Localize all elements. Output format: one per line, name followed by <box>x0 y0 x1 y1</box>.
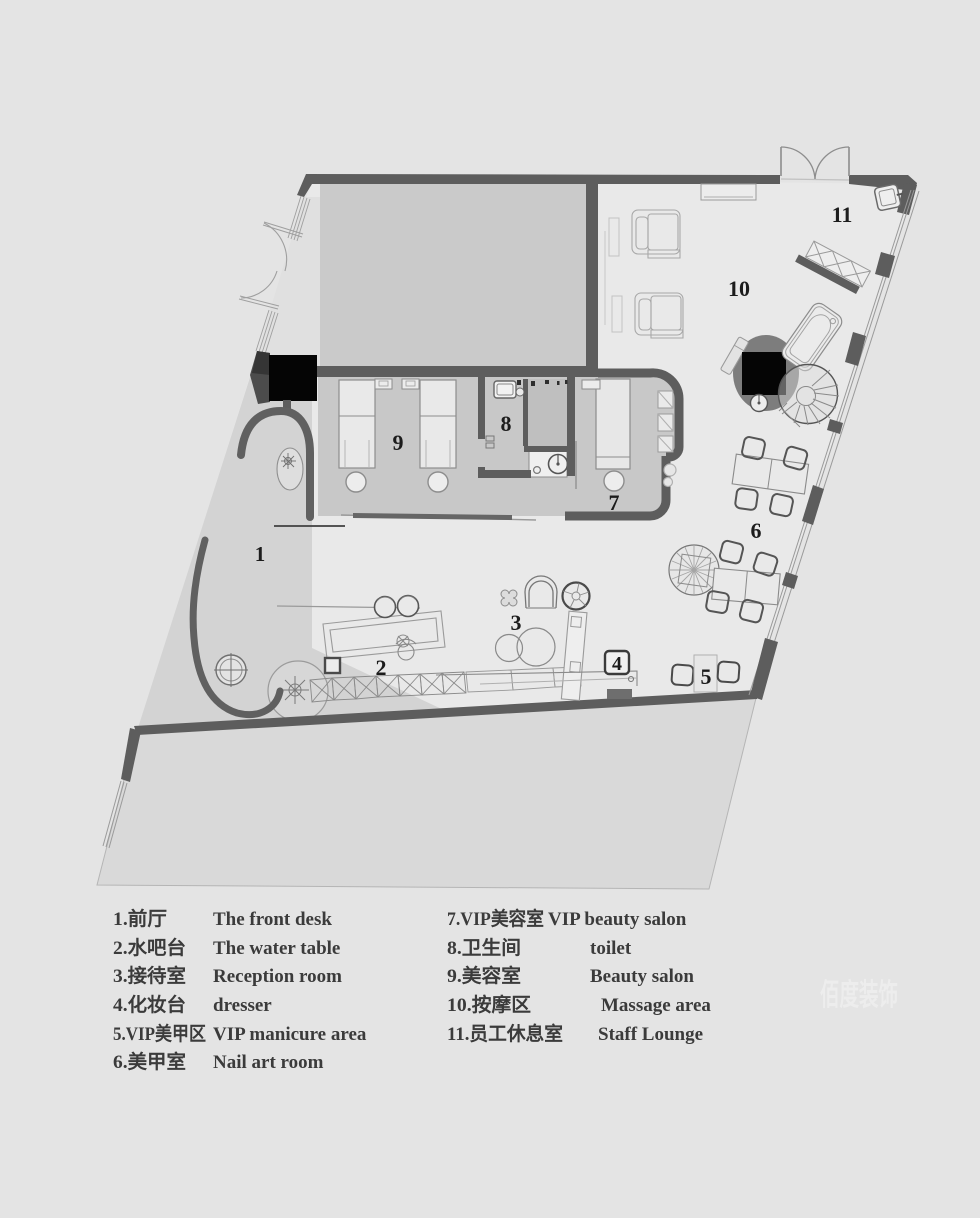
svg-text:5: 5 <box>701 664 712 689</box>
svg-text:The front desk: The front desk <box>213 909 332 930</box>
svg-text:Staff Lounge: Staff Lounge <box>598 1024 703 1045</box>
svg-text:3: 3 <box>511 610 522 635</box>
svg-text:The water table: The water table <box>213 938 340 959</box>
svg-text:3.接待室: 3.接待室 <box>113 964 186 987</box>
svg-text:dresser: dresser <box>213 995 272 1016</box>
svg-text:6.美甲室: 6.美甲室 <box>113 1050 186 1073</box>
svg-text:4: 4 <box>612 653 622 675</box>
svg-text:9: 9 <box>393 430 404 455</box>
svg-text:11: 11 <box>832 202 853 227</box>
svg-text:Nail art room: Nail art room <box>213 1052 324 1073</box>
svg-text:VIP manicure area: VIP manicure area <box>213 1024 367 1045</box>
svg-text:10: 10 <box>728 276 750 301</box>
svg-text:7: 7 <box>609 490 620 515</box>
svg-text:10.按摩区: 10.按摩区 <box>447 993 531 1016</box>
svg-text:佰度装饰: 佰度装饰 <box>820 979 898 1012</box>
svg-text:4.化妆台: 4.化妆台 <box>113 993 186 1016</box>
svg-text:7.VIP美容室: 7.VIP美容室 <box>447 907 544 930</box>
svg-text:9.美容室: 9.美容室 <box>447 964 521 987</box>
svg-text:11.员工休息室: 11.员工休息室 <box>447 1022 563 1045</box>
svg-text:Beauty salon: Beauty salon <box>590 966 694 987</box>
svg-text:5.VIP美甲区: 5.VIP美甲区 <box>113 1022 206 1045</box>
svg-text:2.水吧台: 2.水吧台 <box>113 936 186 959</box>
svg-text:6: 6 <box>751 518 762 543</box>
svg-text:Reception room: Reception room <box>213 966 342 987</box>
svg-text:1: 1 <box>255 542 266 566</box>
svg-text:Massage area: Massage area <box>601 995 711 1016</box>
svg-text:VIP beauty salon: VIP beauty salon <box>548 909 687 930</box>
svg-text:toilet: toilet <box>590 938 632 959</box>
svg-text:8.卫生间: 8.卫生间 <box>447 936 521 959</box>
svg-text:1.前厅: 1.前厅 <box>113 907 167 930</box>
svg-text:8: 8 <box>501 411 512 436</box>
